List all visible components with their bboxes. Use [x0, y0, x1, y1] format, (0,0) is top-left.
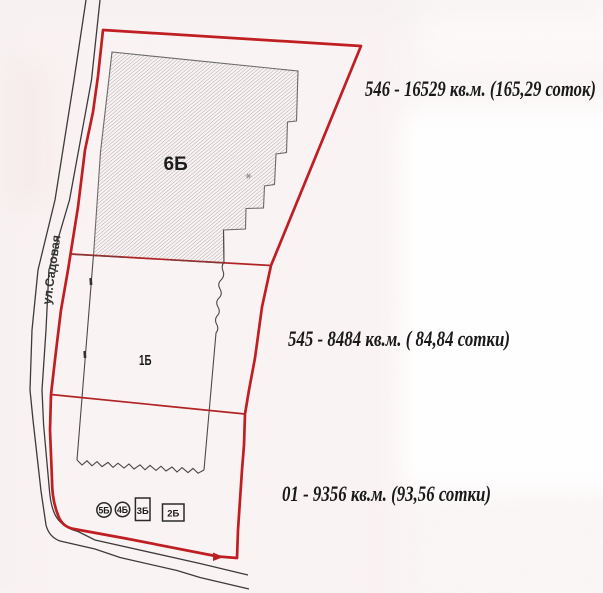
svg-text:5Б: 5Б	[99, 505, 110, 516]
svg-text:6Б: 6Б	[164, 154, 188, 175]
svg-text:01 - 9356 кв.м. (93,56 сотки): 01 - 9356 кв.м. (93,56 сотки)	[282, 481, 491, 506]
svg-text:4Б: 4Б	[117, 505, 128, 516]
svg-text:545 - 8484 кв.м. ( 84,84 сотки: 545 - 8484 кв.м. ( 84,84 сотки)	[288, 326, 510, 351]
svg-text:546 - 16529 кв.м. (165,29 сото: 546 - 16529 кв.м. (165,29 соток)	[365, 76, 596, 101]
svg-text:3Б: 3Б	[137, 506, 149, 517]
svg-text:2Б: 2Б	[167, 508, 179, 519]
svg-text:1Б: 1Б	[139, 353, 152, 369]
